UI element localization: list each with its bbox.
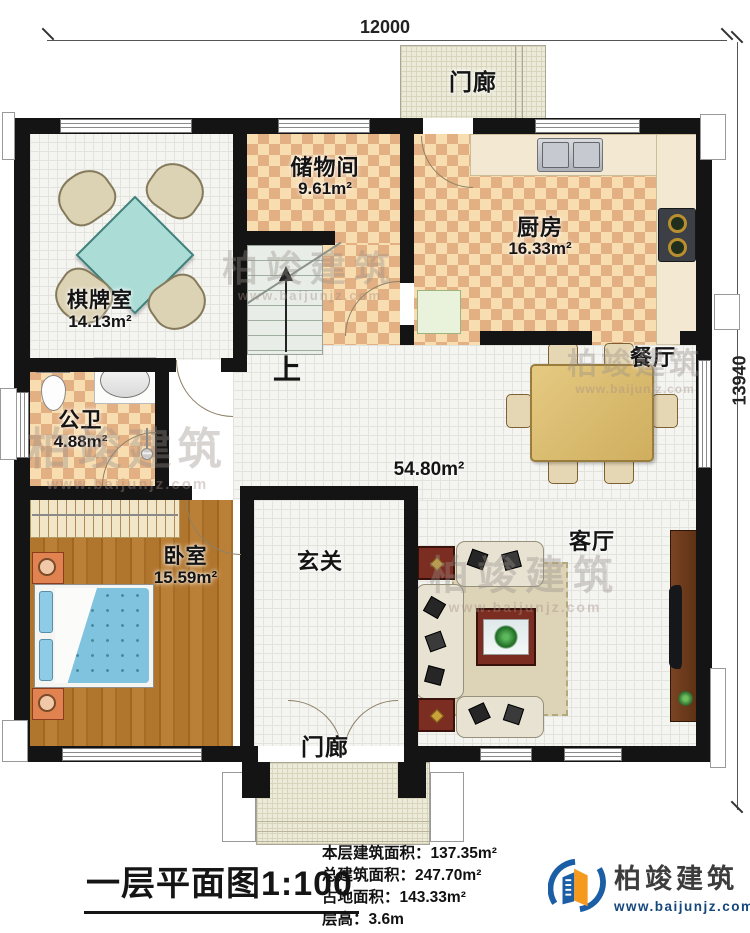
end-table bbox=[417, 546, 455, 580]
wall-foyer-top bbox=[254, 486, 418, 500]
stat-label: 占地面积： bbox=[322, 889, 400, 906]
potted-plant bbox=[494, 625, 518, 649]
wall-kitchen-bottom bbox=[480, 331, 592, 345]
wall-chess-storage bbox=[233, 118, 247, 372]
room-area: 16.33m² bbox=[473, 240, 607, 258]
top-dimension-line bbox=[47, 40, 727, 41]
stat-label: 总建筑面积： bbox=[322, 867, 415, 884]
sofa-pillow bbox=[503, 704, 524, 725]
room-name: 玄关 bbox=[280, 550, 360, 574]
stat-line: 总建筑面积：247.70m² bbox=[322, 865, 497, 887]
room-label-kitchen: 厨房 16.33m² bbox=[473, 216, 607, 258]
room-area: 14.13m² bbox=[40, 313, 160, 331]
room-area: 15.59m² bbox=[128, 569, 243, 587]
sink-basin bbox=[573, 142, 600, 168]
top-dimension-label: 12000 bbox=[330, 17, 440, 38]
sofa-pillow bbox=[425, 631, 447, 653]
room-label-storage: 储物间 9.61m² bbox=[250, 156, 400, 198]
window-sill bbox=[0, 388, 17, 460]
sofa-pillow bbox=[468, 702, 491, 725]
stat-value: 3.6m bbox=[369, 911, 404, 928]
room-label-living: 客厅 bbox=[558, 530, 626, 554]
stair-direction-arrow bbox=[285, 280, 287, 352]
sofa-top bbox=[456, 541, 544, 587]
door-arc-chess bbox=[176, 360, 233, 417]
room-label-chess: 棋牌室 14.13m² bbox=[40, 290, 160, 331]
window-storage bbox=[278, 119, 370, 133]
stat-line: 占地面积：143.33m² bbox=[322, 887, 497, 909]
sofa-left bbox=[416, 584, 464, 699]
wall-storage-right bbox=[400, 118, 414, 283]
right-dimension-label: 13940 bbox=[730, 344, 750, 418]
wall-bath-right bbox=[155, 358, 169, 486]
nightstand bbox=[32, 688, 64, 720]
stove-burner bbox=[668, 214, 687, 233]
room-name: 储物间 bbox=[250, 156, 400, 180]
window-sill bbox=[700, 114, 726, 160]
window-living-1 bbox=[480, 748, 532, 761]
door-opening-top-porch bbox=[423, 118, 473, 134]
room-area: 9.61m² bbox=[250, 180, 400, 198]
stove-burner bbox=[668, 238, 687, 257]
window-chess bbox=[60, 119, 192, 133]
plan-stats: 本层建筑面积：137.35m² 总建筑面积：247.70m² 占地面积：143.… bbox=[322, 843, 497, 931]
floor-plan-page: 12000 13940 门廊 上 bbox=[0, 0, 750, 933]
wardrobe-rod bbox=[32, 514, 178, 516]
wall-bedroom-top bbox=[14, 486, 192, 500]
nightstand-lamp bbox=[38, 558, 56, 576]
window-sill bbox=[2, 112, 15, 160]
stat-value: 137.35m² bbox=[431, 845, 497, 862]
sofa-pillow bbox=[467, 549, 489, 571]
sofa-pillow bbox=[423, 596, 446, 619]
bed bbox=[34, 584, 154, 688]
sofa-bottom bbox=[456, 696, 544, 738]
wall-storage-stair bbox=[233, 231, 335, 245]
end-table bbox=[417, 698, 455, 732]
window-sill bbox=[710, 668, 726, 768]
cabinet-plant bbox=[678, 691, 693, 706]
room-name: 厨房 bbox=[473, 216, 607, 240]
wall-living-left bbox=[404, 500, 418, 762]
end-table-star bbox=[430, 557, 444, 571]
room-name: 棋牌室 bbox=[40, 290, 160, 313]
dining-chair bbox=[652, 394, 678, 428]
hall-area-label: 54.80m² bbox=[383, 460, 475, 481]
tv-cabinet bbox=[670, 530, 698, 722]
nightstand-lamp bbox=[38, 694, 56, 712]
dining-chair bbox=[506, 394, 532, 428]
wall-foyer-left bbox=[240, 486, 254, 762]
pillow bbox=[39, 639, 53, 681]
room-name: 客厅 bbox=[558, 530, 626, 554]
porch-steps bbox=[257, 812, 429, 844]
window-dining bbox=[698, 360, 711, 468]
room-label-bath: 公卫 4.88m² bbox=[33, 410, 128, 451]
plan-title: 一层平面图1:100 bbox=[84, 856, 359, 914]
room-name: 门廊 bbox=[285, 735, 365, 760]
wall-pier bbox=[400, 325, 414, 345]
ac-unit-box bbox=[714, 294, 740, 330]
porch-pier bbox=[242, 762, 270, 798]
wardrobe bbox=[30, 494, 180, 538]
end-table-star bbox=[430, 709, 444, 723]
pillow bbox=[39, 591, 53, 633]
dimension-tick bbox=[42, 28, 55, 41]
room-label-dining: 餐厅 bbox=[620, 346, 686, 370]
stat-line: 本层建筑面积：137.35m² bbox=[322, 843, 497, 865]
room-label-foyer: 玄关 bbox=[280, 550, 360, 574]
window-kitchen bbox=[535, 119, 640, 133]
porch-pier bbox=[398, 762, 426, 798]
stair-up-label: 上 bbox=[268, 348, 306, 388]
room-label-bedroom: 卧室 15.59m² bbox=[128, 546, 243, 587]
fridge bbox=[417, 290, 461, 334]
stair-arrow-head bbox=[279, 266, 293, 281]
wall-chess-bottom bbox=[14, 358, 176, 372]
window-living-2 bbox=[564, 748, 622, 761]
brand-text: 柏竣建筑 www.baijunjz.com bbox=[614, 857, 750, 914]
room-name: 门廊 bbox=[408, 70, 538, 95]
porch-side-step bbox=[430, 772, 464, 842]
room-area: 54.80m² bbox=[383, 460, 475, 481]
sink-basin bbox=[542, 142, 569, 168]
room-name: 卧室 bbox=[128, 546, 243, 569]
room-name: 餐厅 bbox=[620, 346, 686, 370]
room-label-porch-top: 门廊 bbox=[408, 70, 538, 95]
wall-pier bbox=[680, 331, 697, 345]
window-bedroom bbox=[62, 748, 202, 761]
stat-value: 143.33m² bbox=[400, 889, 466, 906]
nightstand bbox=[32, 552, 64, 584]
stat-label: 层高： bbox=[322, 911, 369, 928]
coffee-table bbox=[476, 608, 536, 666]
window-bathroom bbox=[16, 392, 29, 458]
brand-name: 柏竣建筑 bbox=[614, 857, 750, 896]
window-sill bbox=[2, 720, 28, 762]
right-dimension-line bbox=[737, 42, 738, 810]
room-label-porch-bottom: 门廊 bbox=[285, 735, 365, 760]
brand-logo-icon bbox=[548, 856, 606, 914]
sofa-pillow bbox=[424, 665, 445, 686]
brand-url: www.baijunjz.com bbox=[614, 899, 750, 914]
room-area: 4.88m² bbox=[33, 433, 128, 451]
stat-line: 层高：3.6m bbox=[322, 909, 497, 931]
room-name: 公卫 bbox=[33, 410, 128, 433]
stat-label: 本层建筑面积： bbox=[322, 845, 431, 862]
stove bbox=[658, 208, 696, 262]
brand-logo: 柏竣建筑 www.baijunjz.com bbox=[548, 856, 750, 914]
kitchen-sink bbox=[537, 138, 603, 172]
dining-table bbox=[530, 364, 654, 462]
sofa-pillow bbox=[501, 550, 522, 571]
tv bbox=[669, 585, 682, 669]
stat-value: 247.70m² bbox=[415, 867, 481, 884]
